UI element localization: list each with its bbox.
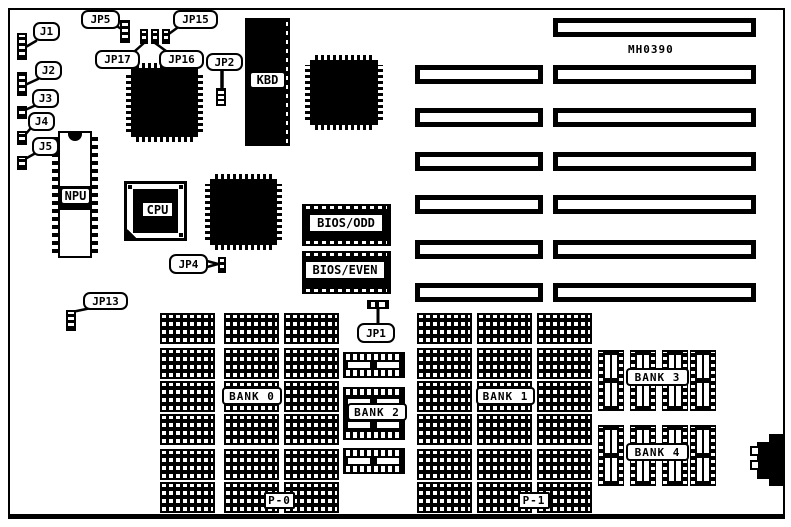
j1-header	[17, 33, 27, 60]
j2-header	[17, 72, 27, 96]
motherboard-diagram: J1 J2 J3 J4 J5 JP5 JP15 JP17 JP16 JP2 JP…	[0, 0, 791, 527]
npu-label: NPU	[60, 187, 91, 205]
jp4-header	[218, 257, 226, 273]
jp2-header	[216, 88, 226, 106]
callout-j1: J1	[33, 22, 60, 41]
j4-header	[17, 131, 27, 145]
callout-jp2: JP2	[206, 53, 243, 71]
cpu-label: CPU	[141, 201, 174, 218]
callout-j4: J4	[28, 112, 55, 131]
j5-header	[17, 156, 27, 170]
callout-j3: J3	[32, 89, 59, 108]
callout-jp4: JP4	[169, 254, 208, 274]
callout-jp13: JP13	[83, 292, 128, 310]
callout-j2: J2	[35, 61, 62, 80]
callout-jp17: JP17	[95, 50, 140, 69]
part-number: MH0390	[628, 43, 674, 56]
jp1-header	[367, 300, 389, 309]
j3-header	[17, 106, 27, 119]
callout-jp1: JP1	[357, 323, 395, 343]
bank4-label: BANK 4	[626, 443, 689, 461]
jp13-header	[66, 310, 76, 331]
callout-jp15: JP15	[173, 10, 218, 29]
jp5-header	[120, 20, 130, 43]
callout-jp5: JP5	[81, 10, 120, 29]
callout-jp16: JP16	[159, 50, 204, 69]
kbd-label: KBD	[249, 71, 286, 89]
bank0-label: BANK 0	[222, 387, 282, 405]
bios-even-label: BIOS/EVEN	[304, 260, 386, 280]
p1-label: P-1	[518, 492, 550, 509]
bios-odd-label: BIOS/ODD	[308, 213, 384, 233]
bank2-label: BANK 2	[347, 403, 407, 421]
p0-label: P-0	[264, 492, 295, 509]
jp15-header	[162, 29, 170, 44]
bank1-label: BANK 1	[476, 387, 535, 405]
jp16-header	[151, 29, 159, 44]
jp17-header	[140, 29, 148, 44]
callout-j5: J5	[32, 137, 59, 156]
bank3-label: BANK 3	[626, 368, 689, 386]
